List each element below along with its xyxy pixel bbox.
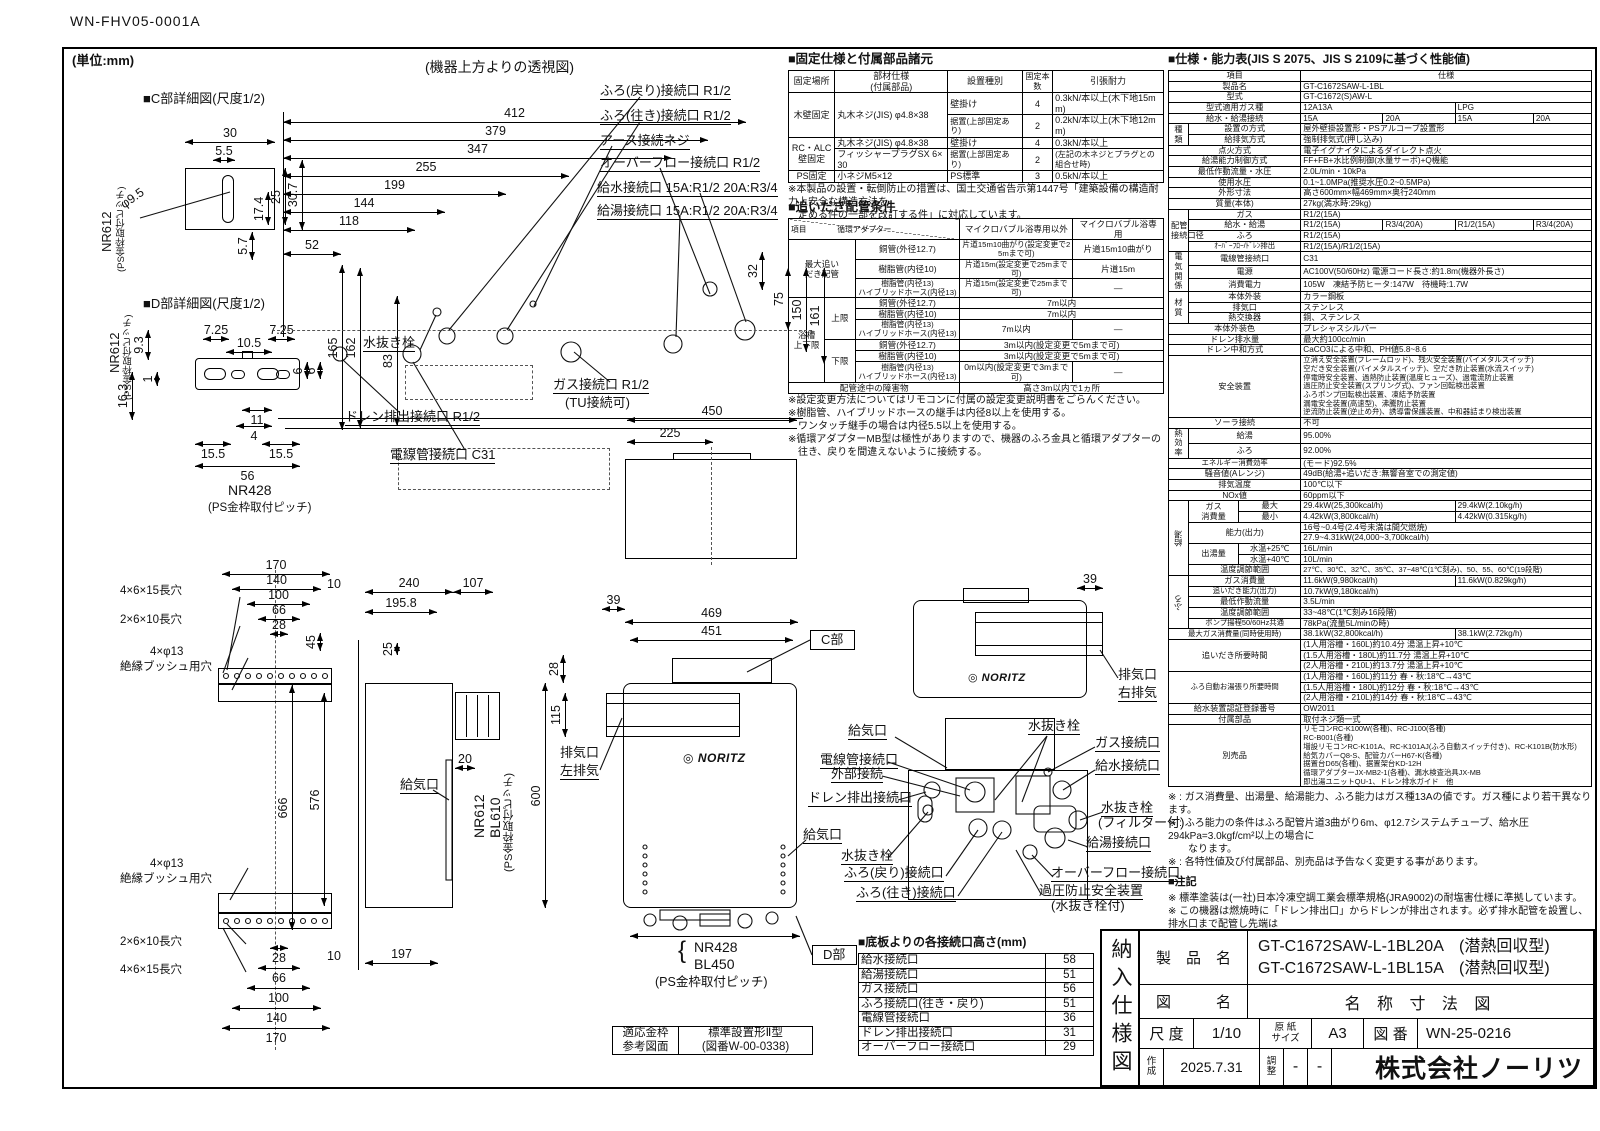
table-cell: マイクロバブル浴専用以外 [960, 219, 1073, 240]
table-cell: 10.7kW(9,180kcal/h) [1301, 586, 1592, 597]
dim: 10 [327, 578, 341, 592]
table-cell: ガス 消費量 [1189, 501, 1239, 522]
table-cell: 31 [1046, 1026, 1094, 1041]
table-cell: ふろ [1189, 443, 1301, 458]
table-cell: オーバーフロー接続口 [859, 1041, 1046, 1056]
note-line: ※ 標準塗装は(一社)日本冷凍空調工業会標準規格(JRA9002)の耐塩害仕様に… [1168, 892, 1592, 905]
dim: 576 [324, 693, 325, 906]
dim: 7.25 [268, 339, 295, 340]
d-slot [276, 370, 290, 379]
noritz-logo: ◎ NORITZ [968, 672, 1026, 684]
bracket-strip [218, 668, 332, 684]
dim: 32 [762, 252, 763, 290]
table-cell: ― [1073, 361, 1164, 382]
table-cell: 2 [1022, 115, 1052, 137]
table-cell: 標準設置形Ⅱ型 (図番W-00-0338) [679, 1027, 813, 1055]
table-cell: 屋外壁掛設置形・PSアルコーブ設置形 [1301, 124, 1592, 135]
table-cell: ふろ自動お湯張り所要時間 [1169, 672, 1301, 704]
table-cell: 36 [1046, 1012, 1094, 1027]
table-cell: 壁掛け [948, 93, 1023, 115]
table-cell: 給水・給湯接続 [1169, 113, 1301, 124]
height-title: ■底板よりの各接続口高さ(mm) [858, 933, 1093, 950]
dim: 52 [283, 254, 341, 255]
table-cell: 給湯能力制御方式 [1169, 156, 1301, 167]
table-cell: 3.5L/min [1301, 597, 1592, 608]
bracket-base [218, 893, 332, 913]
callout-conduit: 電線管接続口 C31 [390, 448, 495, 464]
product-name-value: GT-C1672SAW-L-1BL20A (潜熱回収型) GT-C1672SAW… [1248, 931, 1593, 984]
table-cell: 最小 [1239, 512, 1301, 523]
table-cell: ソーラ接続 [1169, 417, 1301, 428]
table-cell: 能力(出力) [1189, 522, 1301, 543]
table-cell: 3m以内(設定変更で5mまで可) [960, 350, 1164, 361]
table-cell: プレシャスシルバー [1301, 324, 1592, 335]
frame-block: 適応金枠 参考図面標準設置形Ⅱ型 (図番W-00-0338) [612, 1026, 812, 1055]
table-cell: 高さ3m以内で1ヵ所 [960, 383, 1164, 394]
callout-furo-return: ふろ(戻り)接続口 R1/2 [600, 84, 731, 100]
pitch-label: NR612 [100, 192, 113, 252]
dim: 9.3 [148, 330, 149, 360]
dim: 225 [627, 442, 713, 443]
pipe-cond-block: ■追いだき配管条件 項目 循環アダプターマイクロバブル浴専用以外マイクロバブル浴… [788, 196, 1164, 459]
table-cell: ドレン排出接続口 [859, 1026, 1046, 1041]
table-cell: 最大 [1239, 501, 1301, 512]
callout-slot: 4×6×15長穴 [120, 964, 182, 977]
table-cell: 2 [1022, 149, 1052, 171]
callout-hole: 絶縁ブッシュ用穴 [120, 873, 212, 886]
pitch-label: NR428 [228, 483, 272, 498]
table-cell: 固定場所 [789, 71, 835, 93]
callout-hole: 4×φ13 [150, 858, 183, 871]
note-line: ※ : ふろ能力の条件はふろ配管片道3曲がり6m、φ12.7システムチューブ、給… [1168, 817, 1592, 843]
table-cell: 安全装置 [1169, 356, 1301, 418]
callout-hot-water: 給湯接続口 [1086, 836, 1151, 852]
exhaust-duct [975, 612, 1103, 656]
pitch-label: BL610 [488, 778, 502, 838]
table-cell: 丸木ネジ(JIS) φ4.8×38 [835, 93, 948, 137]
dim: 451 [630, 640, 793, 641]
table-cell: 11.6kW(9,980kcal/h) [1301, 576, 1455, 587]
bracket-strip [218, 913, 332, 929]
table-cell: GT-C1672(S)AW-L [1301, 92, 1592, 103]
frame-table: 適応金枠 参考図面標準設置形Ⅱ型 (図番W-00-0338) [612, 1026, 813, 1055]
table-cell: 4 [1022, 93, 1052, 115]
table-cell: 点火方式 [1169, 145, 1301, 156]
table-cell: 最大ガス消費量(同時使用時) [1169, 629, 1301, 640]
table-cell: ふろ [1189, 231, 1301, 242]
spec-notes: ※ : ガス消費量、出湯量、給湯能力、ふろ能力はガス種13Aの値です。ガス種によ… [1168, 791, 1592, 869]
table-cell: 消費電力 [1189, 278, 1301, 291]
table-cell: 樹脂管(内径13) ハイブリッドホース(内径13) [855, 320, 960, 339]
table-cell: 7m以内 [960, 309, 1164, 320]
dim: 45 [320, 633, 321, 651]
table-cell: 78kPa(流量5L/minの時) [1301, 618, 1592, 629]
dim: 28 [563, 655, 564, 683]
note-line: ※ この機器は燃焼時に「ドレン排出口」からドレンが排出されます。必ず排水配管を設… [1168, 905, 1592, 931]
table-cell: 設置の方式 [1189, 124, 1301, 135]
table-cell: 4.42kW(0.315kg/h) [1455, 512, 1591, 523]
dim: 255 [283, 176, 569, 177]
title-block: 納入仕様図 製 品 名 GT-C1672SAW-L-1BL20A (潜熱回収型)… [1100, 929, 1595, 1087]
table-cell: 型式適用ガス種 [1169, 103, 1301, 114]
table-cell: 取付ネジ類一式 [1301, 714, 1592, 725]
table-cell: 固定本数 [1022, 71, 1052, 93]
table-cell: 電線管接続口 [1189, 252, 1301, 265]
table-cell: 27.9~4.31kW(24,000~3,700kcal/h) [1301, 533, 1592, 544]
table-cell: 片道15m10曲がり [1073, 240, 1164, 259]
table-cell: 出湯量 [1189, 544, 1239, 565]
brace: { [678, 938, 686, 964]
dim: 144 [283, 212, 445, 213]
c-slot [222, 175, 234, 223]
table-cell: R1/2(15A) [1301, 220, 1383, 231]
dim: 56 [195, 466, 300, 467]
table-cell: 最大追い だき配管 [789, 240, 856, 298]
d-part-tag: D部 [812, 945, 857, 965]
height-table: 給水接続口58給湯接続口51ガス接続口56ふろ接続口(往き・戻り)51電線管接続… [858, 953, 1094, 1056]
table-cell: 小ネジM5×12 [835, 171, 948, 183]
table-cell: 銅管(外径12.7) [855, 339, 960, 350]
table-cell: AC100V(50/60Hz) 電源コード長さ:約1.8m(機器外長さ) [1301, 265, 1592, 278]
dim [630, 936, 800, 937]
exhaust-label: 排気口 [1118, 668, 1157, 682]
top-bracket [672, 658, 772, 683]
callout-water-inlet: 給水接続口 15A:R1/2 20A:R3/4 [597, 181, 778, 197]
pitch-note: (PS金枠取付ピッチ) [655, 976, 768, 990]
table-cell: 配管途中の障害物 [789, 383, 960, 394]
noritz-logo-icon: ◎ [683, 751, 694, 765]
pipe-notes: ※設定変更方法についてはリモコンに付属の設定変更説明書をごらんください。※樹脂管… [788, 394, 1164, 459]
table-cell: 項目 [1169, 71, 1301, 82]
pitch-label: NR612 [472, 778, 486, 838]
note-line: ワンタッチ継手の場合は内径5.5以上を使用する。 [788, 420, 1164, 433]
table-cell: 追いだき能力(出力) [1189, 586, 1301, 597]
created-date: 2025.7.31 [1164, 1049, 1260, 1085]
pitch-label: NR612 [108, 315, 121, 373]
pitch-note: (PS金枠取付ピッチ) [117, 172, 127, 272]
c-part-tag: C部 [810, 630, 855, 650]
table-cell: 水温+25℃ [1239, 544, 1301, 555]
table-cell: 水温+40℃ [1239, 554, 1301, 565]
drawing-name-label: 図 名 [1140, 985, 1248, 1018]
unit-label: (単位:mm) [72, 54, 134, 68]
table-cell: 3m以内(設定変更で5mまで可) [960, 339, 1164, 350]
height-block: ■底板よりの各接続口高さ(mm) 給水接続口58給湯接続口51ガス接続口56ふろ… [858, 933, 1093, 1056]
table-cell: 外形寸法 [1169, 188, 1301, 199]
table-cell: 4 [1022, 137, 1052, 149]
table-cell: 銅、ステンレス [1301, 313, 1592, 324]
adjust-value2: - [1308, 1049, 1332, 1085]
dim: 39 [602, 609, 625, 610]
note-line: ※樹脂管、ハイブリッドホースの継手は内径8以上を使用する。 [788, 407, 1164, 420]
table-cell: 100℃以下 [1301, 479, 1592, 490]
callout-hole: 絶縁ブッシュ用穴 [120, 661, 212, 674]
table-cell: ― [1073, 278, 1164, 297]
spec-note-title: ■注記 [1168, 873, 1592, 889]
table-cell: CaCO3による中和、PH値5.8~8.6 [1301, 345, 1592, 356]
table-cell: ふろ [1169, 576, 1189, 629]
table-cell: 92.00% [1301, 443, 1592, 458]
table-cell: 木壁固定 [789, 93, 835, 137]
callout-air-intake: 給気口 [803, 828, 842, 844]
duct-line [975, 622, 1103, 623]
dim: 25 [397, 643, 398, 655]
scale-label: 尺 度 [1140, 1019, 1194, 1048]
table-cell: 排気温度 [1169, 479, 1301, 490]
table-cell: 不可 [1301, 417, 1592, 428]
d-slot [204, 368, 226, 380]
paper-size-value: A3 [1312, 1019, 1364, 1048]
table-cell: 3 [1022, 171, 1052, 183]
table-cell: 7m以内 [960, 298, 1164, 309]
table-cell: 本体外装色 [1169, 324, 1301, 335]
table-cell: 樹脂管(内径13) ハイブリッドホース(内径13) [855, 361, 960, 382]
table-cell: R3/4(20A) [1383, 220, 1455, 231]
table-cell: ポンプ揚程50/60Hz共通 [1189, 618, 1301, 629]
table-cell: 使用水圧 [1169, 177, 1301, 188]
table-cell: ガス接続口 [859, 983, 1046, 998]
table-cell: 壁掛け [948, 137, 1023, 149]
table-cell: 電線管接続口 [859, 1012, 1046, 1027]
table-cell: R1/2(15A) [1455, 220, 1533, 231]
callout-gas: ガス接続口 [1095, 736, 1160, 752]
table-cell: (1人用浴槽・160L)約10.4分 湯温上昇+10℃ [1301, 640, 1592, 651]
table-cell: 56 [1046, 983, 1094, 998]
dim: 5.5 [213, 160, 235, 161]
duct-line [975, 645, 1103, 646]
table-cell: R3/4(20A) [1533, 220, 1591, 231]
flange-line [488, 695, 489, 737]
side-body [365, 683, 453, 908]
dim: 195.8 [365, 612, 437, 613]
drawing-name-value: 名 称 寸 法 図 [1248, 985, 1593, 1018]
callout-hole: 4×φ13 [150, 646, 183, 659]
dim: 115 [565, 693, 566, 737]
dim: 1 [157, 372, 158, 386]
table-cell: 33~48℃(1℃刻み16段階) [1301, 608, 1592, 619]
table-cell: 温度調節範囲 [1189, 565, 1301, 576]
table-cell: 片道15m [1073, 259, 1164, 278]
table-cell: LPG [1455, 103, 1591, 114]
callout-drain-outlet: ドレン排出接続口 [808, 791, 912, 807]
dim: 83 [397, 296, 398, 426]
dim: 30.7 [302, 160, 303, 230]
exhaust-duct [606, 693, 740, 737]
table-cell: 電気関係 [1169, 252, 1189, 292]
flange-line [477, 695, 478, 737]
table-cell: 電子イグナイタによるダイレクト点火 [1301, 145, 1592, 156]
table-cell: 給湯接続口 [859, 968, 1046, 983]
pitch-note: (PS金枠取付ピッチ) [504, 762, 515, 872]
table-cell: PS標準 [948, 171, 1023, 183]
table-cell: フィッシャープラグSX 6×30 [835, 149, 948, 171]
dim: 140 [232, 1008, 321, 1009]
table-cell: 電源 [1189, 265, 1301, 278]
table-cell: 0.2kN/本以上(木下地12mm) [1053, 115, 1164, 137]
ext-line [283, 112, 284, 337]
table-cell: PS固定 [789, 171, 835, 183]
table-cell: 据置(上部固定あり) [948, 115, 1023, 137]
callout-slot: 4×6×15長穴 [120, 585, 182, 598]
dim: 11 [242, 410, 272, 411]
table-cell: 材質 [1169, 292, 1189, 324]
d-detail-title: ■D部詳細図(尺度1/2) [143, 297, 265, 311]
table-cell: (1人用浴槽・160L)約11分 春・秋:18℃→43℃ [1301, 672, 1592, 683]
table-cell: R1/2(15A)/R1/2(15A) [1301, 241, 1592, 252]
table-cell: 片道15m(設定変更で25mまで可) [960, 278, 1073, 297]
dim: 199 [283, 194, 506, 195]
table-cell: (1.5人用浴槽・180L)約12分 春・秋:18℃→43℃ [1301, 682, 1592, 693]
table-cell: 強制排気式(押し込み) [1301, 135, 1592, 146]
table-cell: 給排気方式 [1189, 135, 1301, 146]
d-tab [242, 351, 253, 359]
callout-hot-water: 給湯接続口 15A:R1/2 20A:R3/4 [597, 204, 778, 220]
table-cell: 熱交換器 [1189, 313, 1301, 324]
table-cell: 38.1kW(2.72kg/h) [1455, 629, 1591, 640]
callout-relief-note: (水抜き栓付) [1051, 899, 1125, 913]
table-cell: 給水・給湯 [1189, 220, 1301, 231]
created-label: 作 成 [1140, 1049, 1164, 1085]
dim: 469 [625, 622, 798, 623]
dim: 6 [320, 362, 321, 379]
fixing-spec-table: 固定場所部材仕様 (付属部品)設置種別固定本数引張耐力木壁固定丸木ネジ(JIS)… [788, 70, 1164, 183]
top-view-title: (機器上方よりの透視図) [425, 60, 574, 75]
table-cell: 49dB(給湯+追いだき:無響音室での測定値) [1301, 469, 1592, 480]
table-cell: ドレン中和方式 [1169, 345, 1301, 356]
table-cell: C31 [1301, 252, 1592, 265]
table-cell: 給湯 [1189, 428, 1301, 443]
fixing-spec-title: ■固定仕様と付属部品諸元 [788, 48, 1164, 67]
dim: 5.7 [252, 232, 253, 260]
table-cell: (2人用浴槽・210L)約14分 春・秋:18℃→43℃ [1301, 693, 1592, 704]
dim: 15.5 [195, 444, 231, 445]
table-cell: 2.0L/min・10kPa [1301, 167, 1592, 178]
table-cell: 騒音値(Aレンジ) [1169, 469, 1301, 480]
table-cell: リモコンRC-K100W(各種)、RC-J100(各種) RC-B001(各種)… [1301, 725, 1592, 787]
dim: 10 [327, 950, 341, 964]
table-cell: 高さ600mm×幅469mm×奥行240mm [1301, 188, 1592, 199]
table-cell: 4.42kW(3,800kcal/h) [1301, 512, 1455, 523]
dim: 28 [270, 948, 288, 949]
table-cell: 0m以内(設定変更で3mまで可) [960, 361, 1073, 382]
callout-drain-outlet: ドレン排出接続口 R1/2 [345, 410, 480, 426]
table-cell: FF+FB+水比例制御(水量サーボ)+Q機能 [1301, 156, 1592, 167]
duct-line [606, 703, 740, 704]
centerline [711, 447, 712, 565]
table-cell: 上限 [825, 298, 855, 340]
spec-title: ■仕様・能力表(JIS S 2075、JIS S 2109に基づく性能値) [1168, 50, 1592, 67]
table-cell: ステンレス [1301, 302, 1592, 313]
table-cell: 部材仕様 (付属部品) [835, 71, 948, 93]
table-cell: 0.3kN/本以上(木下地15mm) [1053, 93, 1164, 115]
table-cell: 105W 凍結予防ヒータ:147W 待機時:1.7W [1301, 278, 1592, 291]
table-cell: ふろ接続口(往き・戻り) [859, 997, 1046, 1012]
table-cell: 29 [1046, 1041, 1094, 1056]
table-cell: 樹脂管(内径10) [855, 309, 960, 320]
note-line: ※ : ガス消費量、出湯量、給湯能力、ふろ能力はガス種13Aの値です。ガス種によ… [1168, 791, 1592, 817]
table-cell: 適応金枠 参考図面 [613, 1027, 679, 1055]
table-cell: 温度調節範囲 [1189, 608, 1301, 619]
table-cell: 給水装置認証登録番号 [1169, 704, 1301, 715]
table-cell: 0.1~1.0MPa(推奨水圧0.2~0.5MPa) [1301, 177, 1592, 188]
table-cell: 立消え安全装置(フレームロッド)、残火安全装置(バイメタルスイッチ) 空だき安全… [1301, 356, 1592, 418]
table-cell: 付属部品 [1169, 714, 1301, 725]
table-cell: 設置種別 [948, 71, 1023, 93]
wall-line [358, 640, 359, 970]
table-cell: マイクロバブル浴専用 [1073, 219, 1164, 240]
callout-gas-note: (TU接続可) [565, 396, 630, 410]
table-cell: 種類 [1169, 124, 1189, 145]
table-cell: R1/2(15A) [1301, 231, 1592, 242]
callout-overflow: オーバーフロー接続口 R1/2 [600, 156, 760, 172]
dim: 240 [365, 592, 453, 593]
flange-line [466, 695, 467, 737]
dim: 66 [258, 968, 300, 969]
table-cell: (左記の木ネジとプラグとの組合せ時) [1053, 149, 1164, 171]
note-line: なります。 [1168, 843, 1592, 856]
table-cell: 樹脂管(内径13) ハイブリッドホース(内径13) [855, 278, 960, 297]
table-cell: R1/2(15A) [1301, 209, 1592, 220]
dim: 165 [342, 265, 343, 430]
table-cell: 最大約100cc/min [1301, 334, 1592, 345]
note-line: ※設定変更方法についてはリモコンに付属の設定変更説明書をごらんください。 [788, 394, 1164, 407]
table-cell: 仕様 [1301, 71, 1592, 82]
base-line [285, 428, 797, 429]
table-cell: 20A [1533, 113, 1591, 124]
dim: 107 [453, 592, 493, 593]
table-cell: 給湯 [1169, 501, 1189, 576]
dim: 450 [627, 420, 797, 421]
company-name: 株式会社ノーリツ [1332, 1049, 1593, 1085]
spec-block: ■仕様・能力表(JIS S 2075、JIS S 2109に基づく性能値) 項目… [1168, 50, 1592, 957]
table-cell: 16L/min [1301, 544, 1592, 555]
table-cell: 項目 循環アダプター [789, 219, 960, 240]
adjust-value: - [1284, 1049, 1308, 1085]
table-cell: 29.4kW(25,300kcal/h) [1301, 501, 1455, 512]
note-line: 往き、戻りを間違えないように接続する。 [788, 446, 1164, 459]
table-cell: (1.5人用浴槽・180L)約11.7分 湯温上昇+10℃ [1301, 650, 1592, 661]
table-cell: エネルギー消費効率 [1169, 458, 1301, 469]
table-cell: 銅管(外径12.7) [855, 240, 960, 259]
dim: 20 [455, 768, 475, 769]
pipe-cond-title: ■追いだき配管条件 [788, 196, 1164, 215]
table-cell: 熱効率 [1169, 428, 1189, 458]
hidden-outline [405, 365, 533, 400]
dim: 162 [360, 268, 361, 428]
dim: 170 [222, 1028, 330, 1029]
callout-air-intake: 給気口 [400, 778, 439, 794]
note-line: ※ : 各特性値及び付属部品、別売品は予告なく変更する事があります。 [1168, 856, 1592, 869]
callout-furo-return: ふろ(戻り)接続口 [844, 866, 944, 882]
title-block-side: 納入仕様図 [1102, 931, 1140, 1085]
table-cell: カラー鋼板 [1301, 292, 1592, 303]
table-cell: 12A13A [1301, 103, 1455, 114]
table-cell: 最低作動流量 [1189, 597, 1301, 608]
product-model: GT-C1672SAW-L-1BL15A (潜熱回収型) [1258, 958, 1550, 980]
table-cell: 16号~0.4号(2.4号未満は間欠燃焼) [1301, 522, 1592, 533]
callout-earth-screw: アース接続ネジ [600, 134, 690, 150]
paper-size-label: 原 紙 サイズ [1260, 1019, 1312, 1048]
table-cell: 給水接続口 [859, 954, 1046, 969]
dim: 15.5 [262, 444, 300, 445]
table-cell: 95.00% [1301, 428, 1592, 443]
table-cell: 別売品 [1169, 725, 1301, 787]
pitch-label: BL450 [694, 957, 734, 972]
table-cell: 0.3kN/本以上 [1053, 137, 1164, 149]
table-cell: ― [1073, 320, 1164, 339]
table-cell: 丸木ネジ(JIS) φ4.8×38 [835, 137, 948, 149]
doc-code: WN-FHV05-0001A [70, 14, 201, 29]
